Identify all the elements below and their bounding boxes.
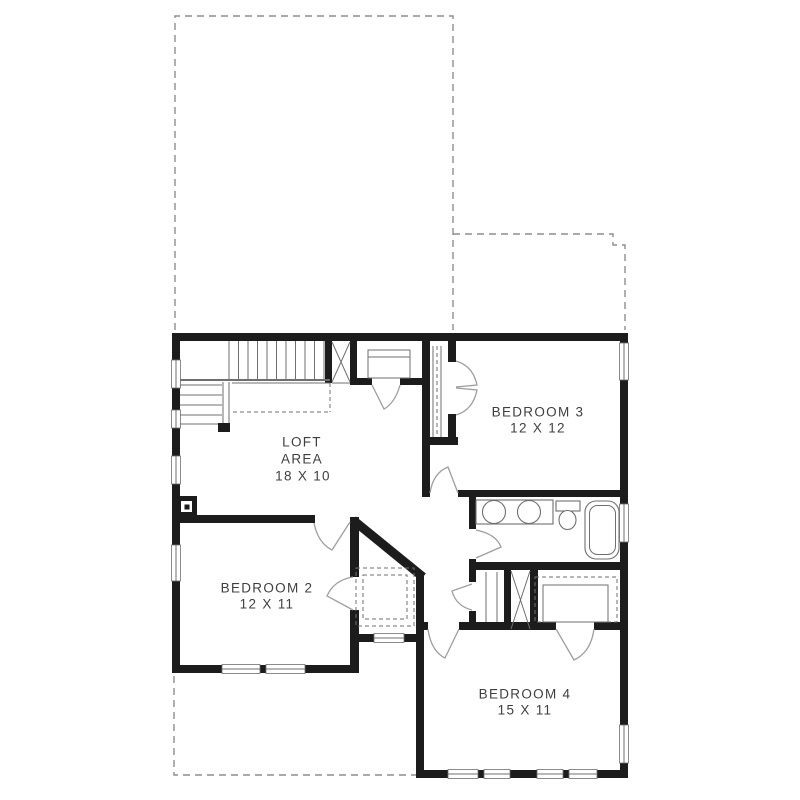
top-wall — [175, 333, 628, 341]
nook-wall-right — [400, 378, 424, 385]
bedroom4-closet — [535, 577, 617, 622]
right-wall — [620, 333, 628, 778]
bedroom2-bottom-wall — [172, 665, 358, 673]
bedroom2-closet — [356, 568, 414, 626]
bathroom-door — [476, 530, 501, 558]
loft-label: LOFT — [282, 435, 322, 450]
loft-label-line2: AREA — [281, 452, 323, 467]
staircase — [180, 341, 330, 432]
sink-left — [483, 501, 506, 524]
bedroom3-closet-door-top — [456, 361, 477, 387]
bedroom3-dimensions: 12 X 12 — [510, 421, 566, 436]
bedroom4-door — [428, 629, 459, 658]
bedroom2-top-wall — [180, 515, 315, 523]
bedroom2-door — [314, 522, 350, 550]
linen-east-wall — [504, 570, 511, 630]
bedroom4-west-wall — [416, 575, 424, 778]
post-symbol — [176, 496, 197, 517]
nook-shelf — [368, 350, 410, 378]
bedroom3-closet-door-bottom — [456, 388, 477, 415]
walls — [172, 333, 628, 778]
bedroom4-label: BEDROOM 4 — [479, 687, 572, 702]
bedroom2-label: BEDROOM 2 — [221, 581, 314, 596]
bathroom-bottom-wall — [469, 562, 628, 570]
second-floor-plan: LOFT AREA 18 X 10 BEDROOM 3 12 X 12 BEDR… — [0, 0, 800, 800]
toilet-tank — [556, 501, 580, 511]
bedroom3-closet-west-wall — [422, 341, 430, 497]
bedroom4-closet-door — [556, 629, 594, 660]
bathroom-top-wall — [458, 490, 628, 497]
bedroom3-closet-jamb-top — [448, 341, 456, 362]
nook-closet-door — [372, 385, 400, 409]
floor-plan-drawing — [0, 0, 800, 800]
nook-wall-left — [350, 378, 372, 385]
bedroom3-closet-jamb-bottom — [448, 414, 456, 445]
toilet-bowl — [559, 511, 576, 530]
chase-west-stub — [325, 339, 332, 383]
bedroom3-label: BEDROOM 3 — [492, 405, 585, 420]
bedroom4-dimensions: 15 X 11 — [498, 703, 553, 718]
chase-east-stub — [350, 339, 357, 383]
newel-post — [218, 423, 230, 432]
bedroom2-dimensions: 12 X 11 — [240, 597, 295, 612]
sink-right — [518, 501, 541, 524]
chase2-east-wall — [530, 570, 538, 630]
first-floor-outline — [174, 16, 625, 775]
loft-dimensions: 18 X 10 — [275, 469, 331, 484]
bathroom-fixtures — [476, 500, 619, 559]
